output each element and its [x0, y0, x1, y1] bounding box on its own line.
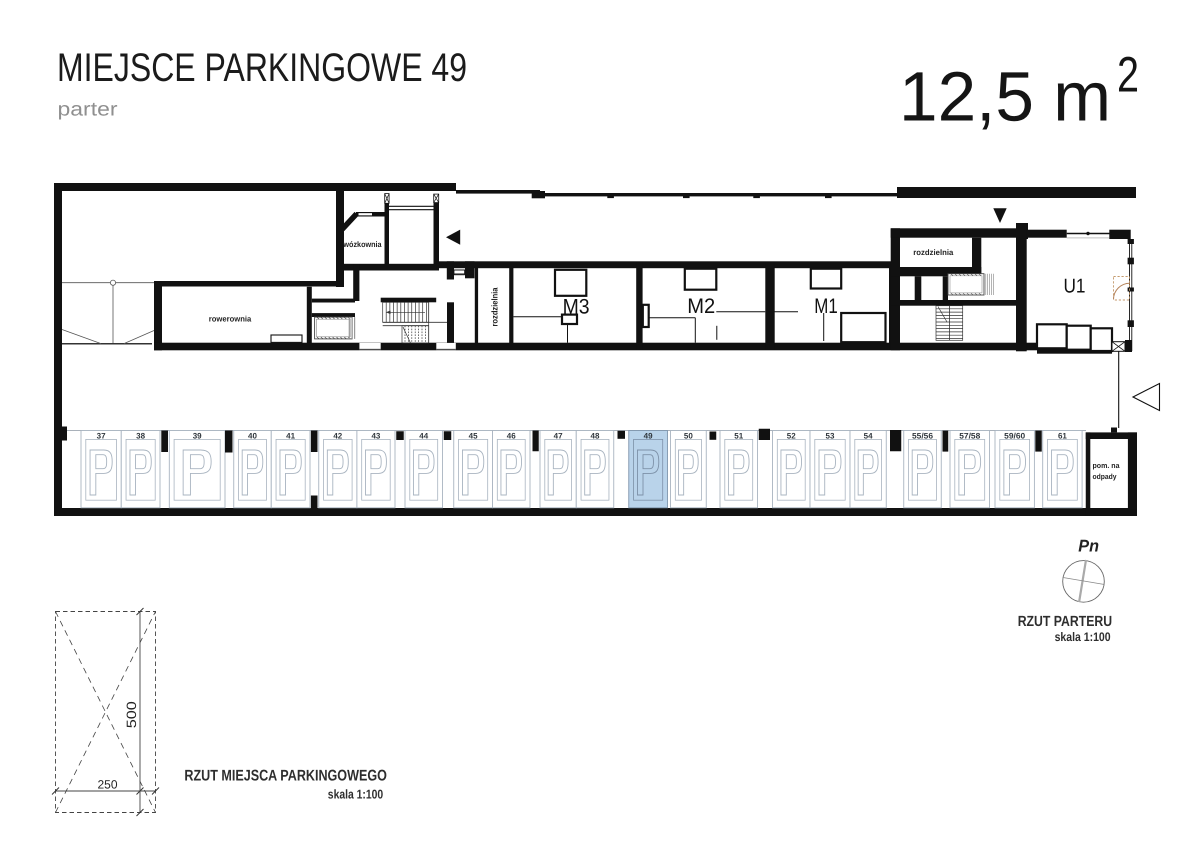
svg-text:rowerownia: rowerownia — [209, 314, 252, 323]
svg-text:47: 47 — [554, 432, 563, 441]
svg-text:59/60: 59/60 — [1004, 432, 1026, 441]
svg-text:41: 41 — [286, 432, 295, 441]
svg-text:M1: M1 — [814, 295, 838, 318]
svg-text:51: 51 — [734, 432, 743, 441]
svg-text:Pn: Pn — [1078, 537, 1099, 556]
svg-text:RZUT MIEJSCA PARKINGOWEGO: RZUT MIEJSCA PARKINGOWEGO — [184, 767, 387, 784]
svg-text:49: 49 — [644, 432, 653, 441]
svg-text:2: 2 — [1117, 46, 1139, 102]
svg-text:38: 38 — [136, 432, 145, 441]
svg-text:39: 39 — [193, 432, 202, 441]
svg-text:54: 54 — [864, 432, 873, 441]
svg-text:M3: M3 — [563, 296, 590, 319]
svg-text:MIEJSCE PARKINGOWE 49: MIEJSCE PARKINGOWE 49 — [57, 46, 467, 90]
svg-text:rozdzielnia: rozdzielnia — [913, 248, 954, 257]
svg-text:500: 500 — [124, 701, 139, 728]
svg-text:45: 45 — [469, 432, 478, 441]
svg-text:46: 46 — [507, 432, 516, 441]
svg-text:40: 40 — [248, 432, 257, 441]
svg-text:skala 1:100: skala 1:100 — [1055, 630, 1111, 644]
svg-text:61: 61 — [1058, 432, 1067, 441]
svg-text:M2: M2 — [687, 295, 715, 318]
svg-text:odpady: odpady — [1093, 472, 1118, 481]
svg-text:37: 37 — [97, 432, 106, 441]
svg-text:57/58: 57/58 — [959, 432, 981, 441]
svg-text:44: 44 — [419, 432, 428, 441]
svg-text:U1: U1 — [1064, 275, 1086, 297]
svg-text:52: 52 — [787, 432, 796, 441]
svg-text:42: 42 — [333, 432, 342, 441]
svg-text:50: 50 — [684, 432, 693, 441]
svg-text:parter: parter — [58, 99, 119, 121]
svg-text:rozdzielnia: rozdzielnia — [490, 287, 500, 326]
svg-text:12,5 m: 12,5 m — [899, 58, 1111, 136]
svg-text:250: 250 — [97, 778, 117, 792]
svg-text:53: 53 — [826, 432, 835, 441]
svg-text:wózkownia: wózkownia — [342, 240, 382, 249]
svg-text:pom. na: pom. na — [1093, 461, 1121, 470]
svg-text:55/56: 55/56 — [912, 432, 934, 441]
svg-text:skala 1:100: skala 1:100 — [328, 786, 383, 801]
svg-text:48: 48 — [591, 432, 600, 441]
svg-text:RZUT PARTERU: RZUT PARTERU — [1018, 614, 1112, 630]
svg-text:43: 43 — [371, 432, 380, 441]
